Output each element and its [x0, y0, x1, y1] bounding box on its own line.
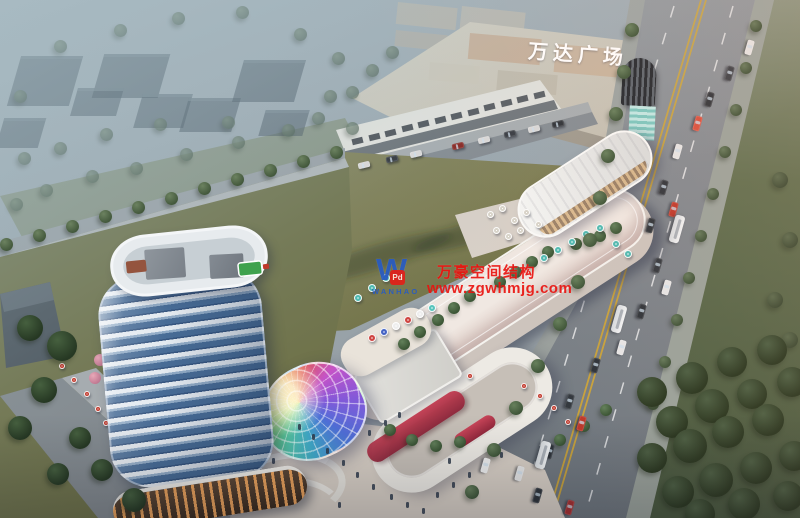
car [451, 142, 464, 151]
car [704, 91, 715, 107]
car [564, 499, 575, 515]
car [503, 130, 516, 139]
car [551, 120, 564, 129]
car [636, 303, 647, 319]
aerial-rendering-scene: 万达广场 W Pd [0, 0, 800, 518]
car [514, 465, 525, 481]
car [564, 393, 575, 409]
car [409, 150, 422, 159]
traffic-layer [0, 0, 800, 518]
car [385, 155, 398, 164]
car [724, 65, 735, 81]
car [661, 279, 672, 295]
car [532, 487, 543, 503]
car [477, 136, 490, 145]
bus [668, 214, 685, 244]
car [744, 39, 755, 55]
car [590, 357, 601, 373]
car [658, 179, 669, 195]
car [357, 161, 370, 170]
car [576, 415, 587, 431]
bus [610, 304, 627, 334]
car [692, 115, 703, 131]
car [480, 457, 491, 473]
car [652, 257, 663, 273]
car [527, 125, 540, 134]
car [672, 143, 683, 159]
car [616, 339, 627, 355]
car [645, 217, 656, 233]
